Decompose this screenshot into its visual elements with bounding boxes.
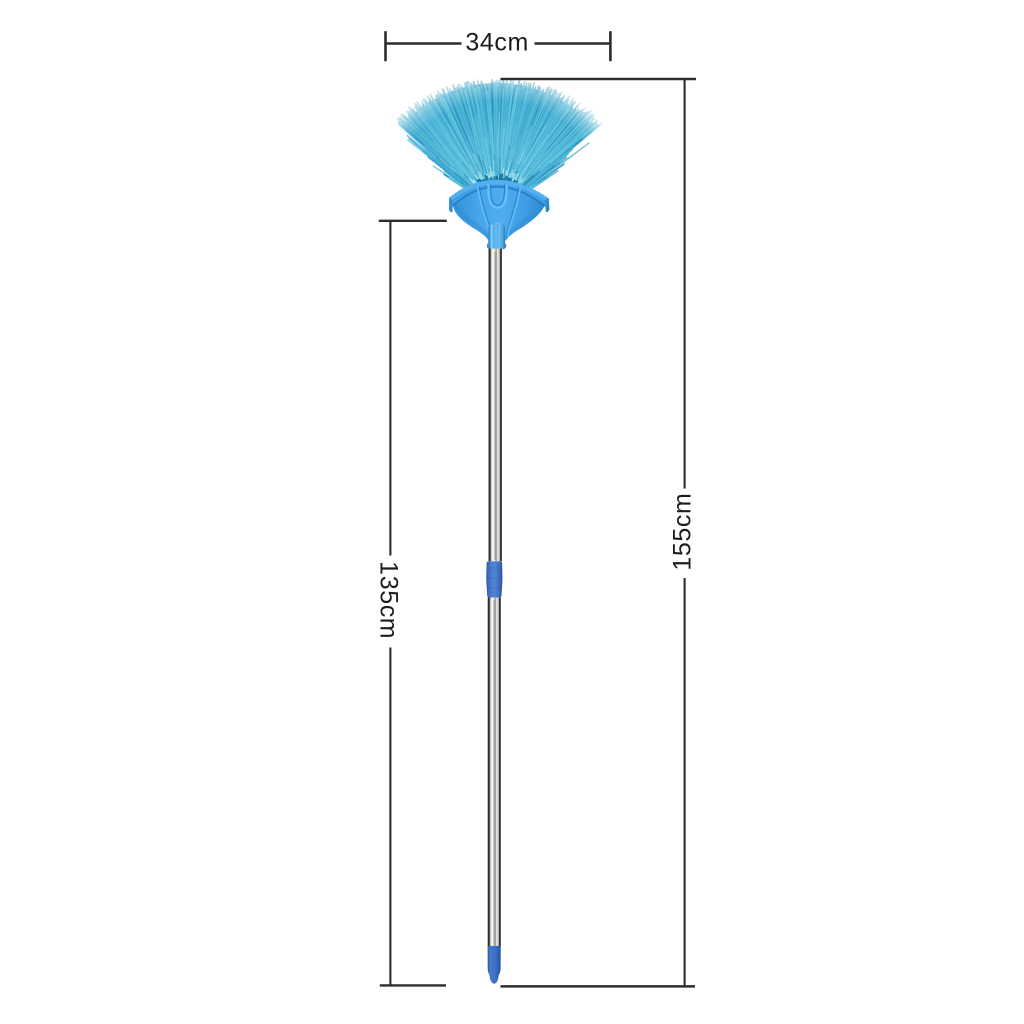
- svg-text:135cm: 135cm: [374, 561, 402, 639]
- svg-text:34cm: 34cm: [465, 29, 529, 57]
- svg-text:155cm: 155cm: [669, 493, 697, 571]
